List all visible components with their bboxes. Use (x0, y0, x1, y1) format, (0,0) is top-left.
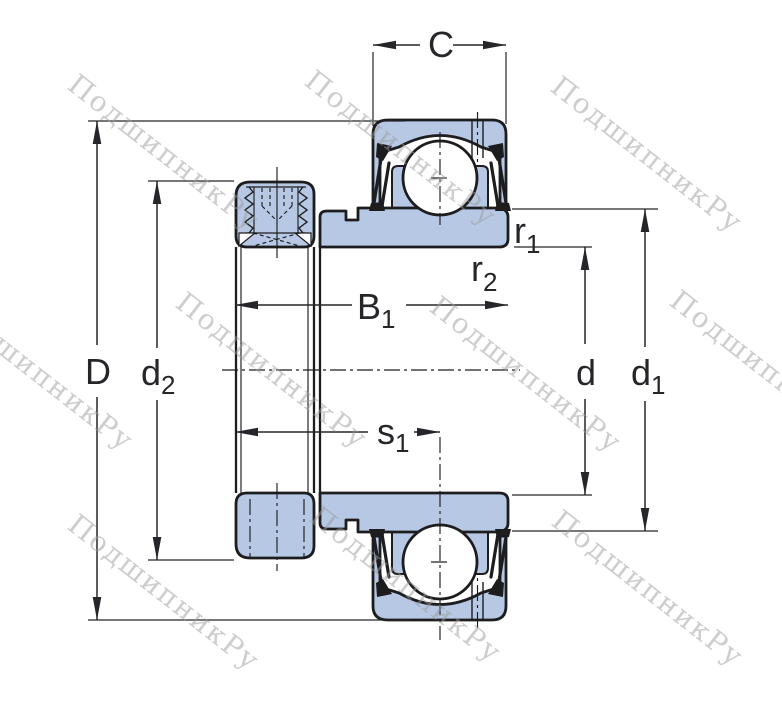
dim-d2: d2 (141, 181, 176, 560)
dim-r1: r1 (514, 210, 540, 259)
arrowhead (93, 597, 102, 620)
dim-label-B1: B1 (357, 286, 395, 334)
watermark-text: ПодшипникРу (664, 284, 782, 454)
arrowhead (485, 301, 508, 310)
seal-right-anchor (488, 143, 504, 161)
dim-d: d (576, 247, 596, 495)
arrowhead (153, 537, 162, 560)
arrowhead (483, 41, 506, 50)
arrowhead (641, 508, 650, 531)
arrowhead (373, 41, 396, 50)
technical-drawing: C D d2 B1 s1 d d1 r1 r2 (0, 0, 782, 704)
watermark-text: ПодшипникРу (0, 288, 140, 458)
dim-label-r1: r1 (514, 210, 540, 259)
arrowhead (235, 428, 258, 437)
arrowhead (581, 247, 590, 270)
watermark-text: ПодшипникРу (545, 70, 750, 240)
dim-C: C (373, 24, 506, 65)
arrowhead (153, 181, 162, 204)
dim-label-d2: d2 (141, 352, 176, 400)
dim-d1: d1 (631, 209, 666, 531)
watermark-text: ПодшипникРу (424, 290, 629, 460)
bearing-drawing-canvas: C D d2 B1 s1 d d1 r1 r2 (0, 0, 782, 704)
dim-label-C: C (428, 24, 454, 65)
dim-label-d: d (576, 352, 596, 393)
dim-label-D: D (85, 351, 111, 392)
watermark-text: ПодшипникРу (62, 68, 267, 238)
watermark-text: ПодшипникРу (546, 504, 751, 674)
arrowhead (235, 301, 258, 310)
dim-label-s1: s1 (377, 411, 409, 458)
arrowhead (641, 209, 650, 232)
dim-label-d1: d1 (631, 352, 666, 400)
dim-label-r2: r2 (471, 248, 497, 297)
arrowhead (93, 121, 102, 144)
seal-left-foot (369, 202, 385, 211)
arrowhead (581, 472, 590, 495)
dim-r2: r2 (471, 248, 497, 297)
arrowhead (417, 428, 440, 437)
